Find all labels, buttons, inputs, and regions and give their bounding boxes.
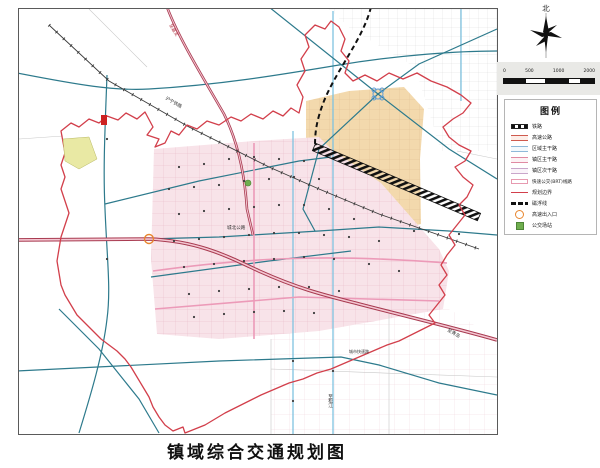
- town-main-road-swatch: [511, 157, 528, 163]
- legend-item-regional-road: 区域主干路: [511, 143, 591, 154]
- map-svg: 至嘉定 沪宁铁路 城北公路 城市快速路 至青岛 至松江: [19, 9, 497, 434]
- scale-tick: 2000: [584, 69, 595, 74]
- planning-map-page: 至嘉定 沪宁铁路 城北公路 城市快速路 至青岛 至松江 北: [0, 0, 600, 468]
- legend-item-plan-boundary: 规划边界: [511, 187, 591, 198]
- maglev-line-swatch: [511, 202, 528, 206]
- scale-tick: 0: [503, 69, 506, 74]
- north-arrow: 北: [500, 2, 596, 60]
- depot-marker-red: [101, 115, 107, 125]
- scale-tick: 1000: [553, 69, 564, 74]
- expressway-swatch: [511, 135, 528, 141]
- legend-item-expressway: 高速公路: [511, 132, 591, 143]
- brt-line-swatch: [511, 179, 528, 184]
- greenfield-patch: [63, 137, 97, 169]
- legend-item-railway: 铁路: [511, 121, 591, 132]
- label-expwy-reserve: 城市快速路: [349, 348, 369, 354]
- regional-road-swatch: [511, 146, 528, 152]
- bus-depot-swatch: [516, 222, 524, 230]
- legend-title: 图例: [511, 104, 591, 117]
- expwy-exit-swatch: [515, 210, 524, 219]
- legend-item-maglev-line: 磁浮线: [511, 198, 591, 209]
- compass-star: [530, 16, 562, 52]
- scale-bar: 0 500 1000 2000: [497, 62, 600, 95]
- legend-item-brt-line: 快速公交(BRT)线路: [511, 176, 591, 187]
- legend-item-expwy-exit: 高速出入口: [511, 209, 591, 220]
- legend-item-town-main-road: 镇区主干路: [511, 154, 591, 165]
- scale-tick: 500: [525, 69, 534, 74]
- label-to-songjiang: 至松江: [328, 394, 333, 409]
- label-chengbei-road: 城北公路: [227, 224, 246, 231]
- bus-depot-marker: [245, 180, 251, 186]
- page-title: 镇域综合交通规划图: [18, 438, 496, 463]
- plan-boundary-swatch: [511, 192, 528, 193]
- legend-item-town-sec-road: 镇区次干路: [511, 165, 591, 176]
- legend-panel: 图例 铁路 高速公路 区域主干路 镇区主干路 镇区次干路 快速公交(BRT)线路…: [504, 99, 597, 235]
- town-sec-road-swatch: [511, 168, 528, 174]
- railway-line-swatch: [511, 124, 528, 129]
- north-label: 北: [542, 4, 550, 13]
- scale-bar-blocks: [503, 78, 595, 82]
- map-canvas: 至嘉定 沪宁铁路 城北公路 城市快速路 至青岛 至松江: [18, 8, 498, 435]
- legend-item-bus-depot: 公交场站: [511, 220, 591, 231]
- label-railway-name: 沪宁铁路: [164, 95, 184, 110]
